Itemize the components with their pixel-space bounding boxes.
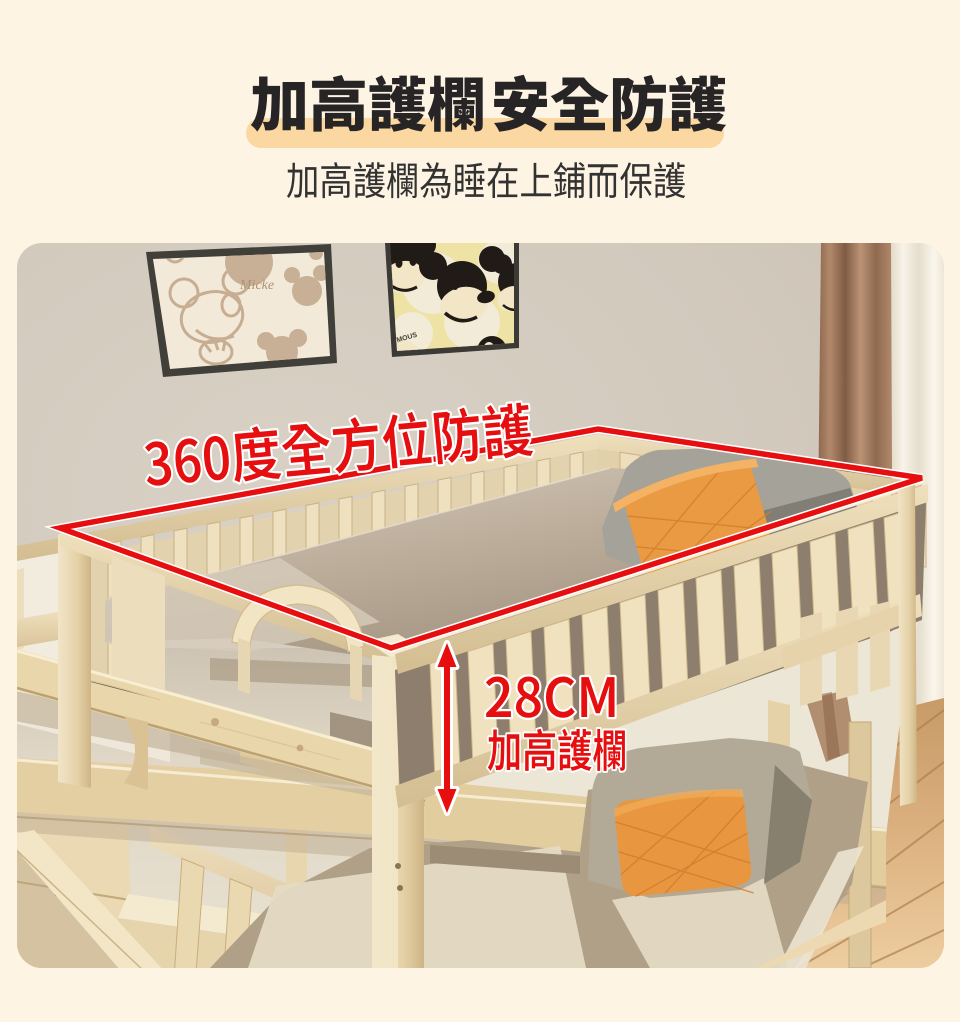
svg-text:Micke: Micke: [239, 278, 274, 293]
